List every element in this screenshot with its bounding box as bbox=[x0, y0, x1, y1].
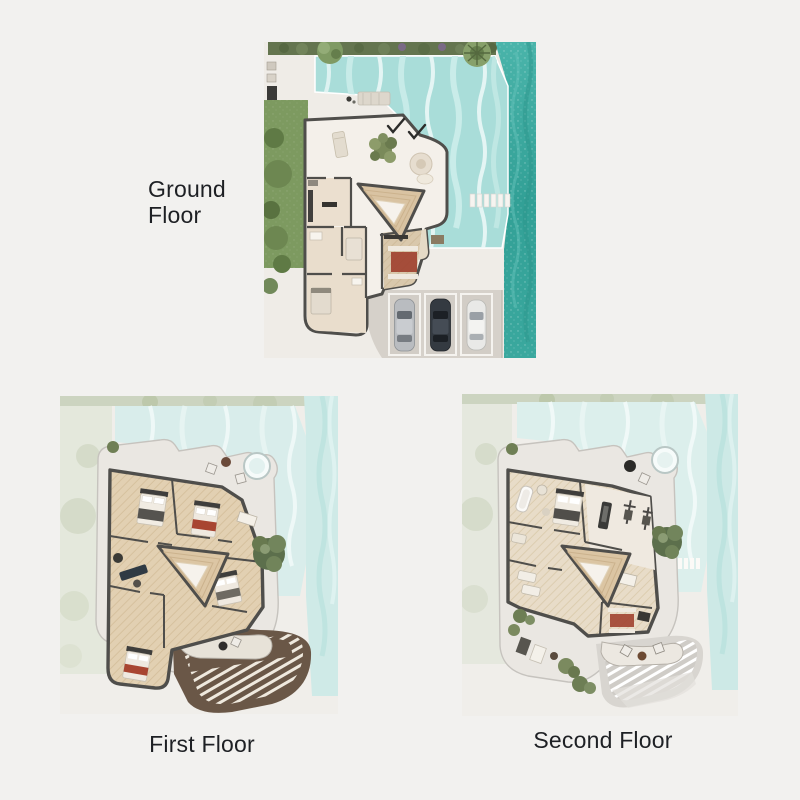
ground-floor-plan-image bbox=[264, 42, 536, 358]
second-site bbox=[462, 394, 738, 716]
lawn bbox=[264, 100, 308, 294]
stool bbox=[542, 508, 550, 516]
first-floor-plan-image bbox=[60, 396, 338, 714]
house bbox=[508, 470, 658, 636]
second-floor-label: Second Floor bbox=[497, 727, 709, 753]
car-dark bbox=[431, 299, 451, 351]
sea-faded bbox=[705, 394, 738, 690]
hedge bbox=[268, 42, 497, 55]
planter bbox=[107, 441, 119, 453]
second-floor-plan-image bbox=[462, 394, 738, 716]
terrace-table bbox=[221, 457, 231, 467]
round-chair bbox=[537, 485, 547, 495]
outdoor-kitchen bbox=[267, 62, 277, 100]
round-table-dark bbox=[624, 460, 636, 472]
ground-site bbox=[264, 42, 536, 358]
first-site bbox=[60, 396, 338, 714]
car-white bbox=[467, 300, 486, 350]
car-silver bbox=[395, 299, 415, 351]
chair-dark bbox=[113, 553, 123, 563]
terrace-chair bbox=[235, 473, 246, 484]
ground-floor-label: Ground Floor bbox=[148, 176, 258, 228]
planter bbox=[506, 443, 518, 455]
first-floor-label: First Floor bbox=[96, 731, 308, 757]
